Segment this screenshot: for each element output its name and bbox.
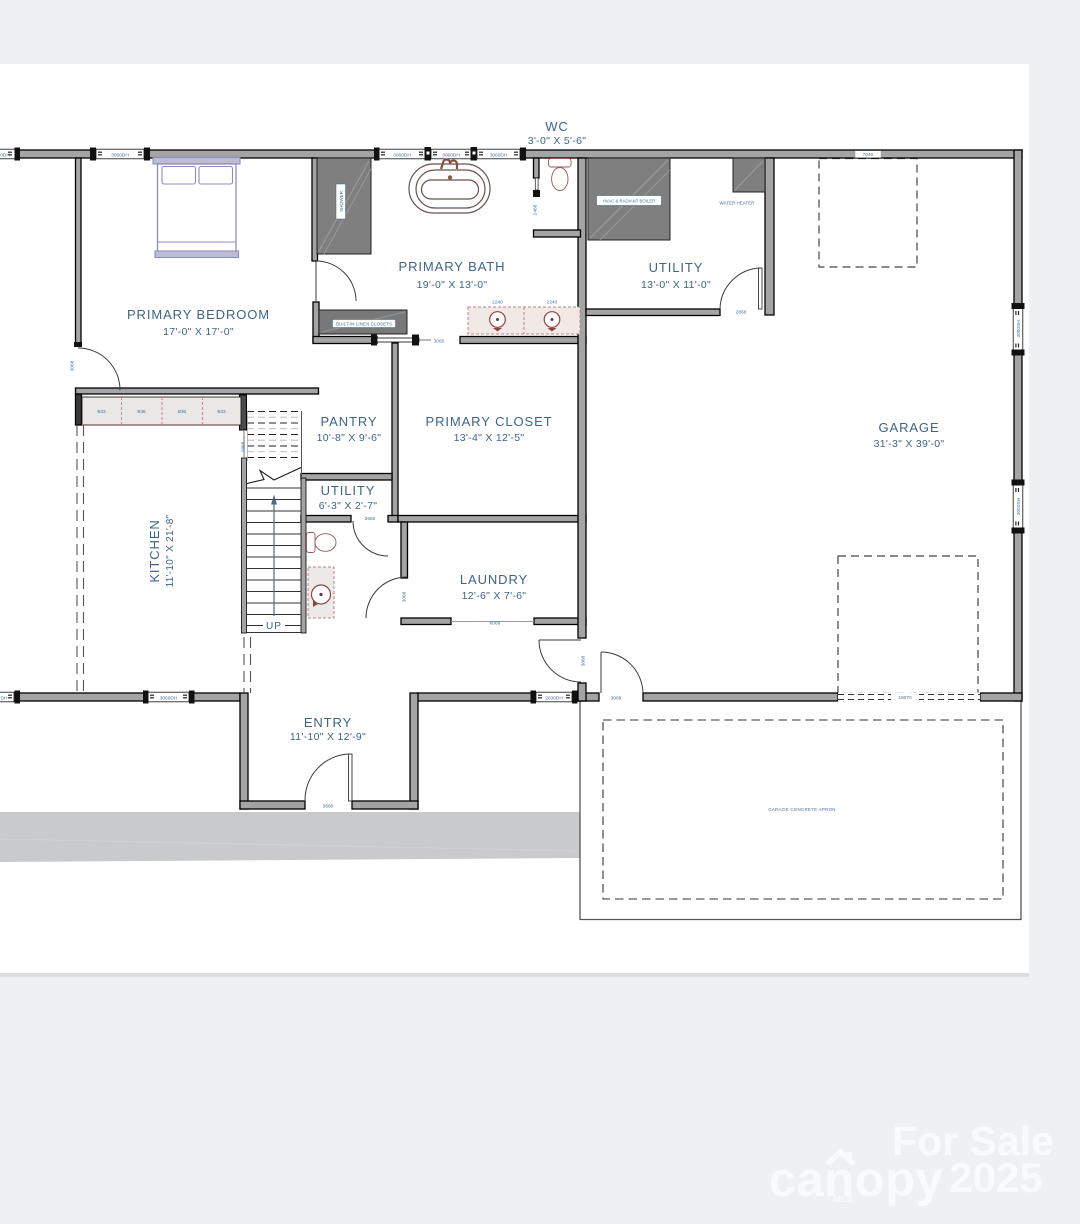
svg-text:KITCHEN: KITCHEN xyxy=(147,519,162,582)
svg-text:WC: WC xyxy=(545,119,568,134)
svg-text:PRIMARY BATH: PRIMARY BATH xyxy=(399,259,506,274)
svg-text:2240: 2240 xyxy=(492,300,503,306)
svg-text:6'-3" X 2'-7": 6'-3" X 2'-7" xyxy=(319,500,378,512)
svg-text:13'-4" X 12'-5": 13'-4" X 12'-5" xyxy=(454,432,525,444)
svg-text:DH: DH xyxy=(1,696,8,702)
svg-text:7040: 7040 xyxy=(863,152,874,158)
svg-text:MLS: MLS xyxy=(833,1194,853,1205)
svg-text:UTILITY: UTILITY xyxy=(649,260,704,275)
svg-text:3050SH: 3050SH xyxy=(1016,320,1022,338)
svg-text:6068: 6068 xyxy=(490,621,501,627)
svg-text:2660: 2660 xyxy=(365,516,376,522)
svg-text:11'-10" X 21'-8": 11'-10" X 21'-8" xyxy=(165,514,176,587)
svg-text:10'-8" X 9'-6": 10'-8" X 9'-6" xyxy=(317,432,382,444)
svg-text:UP: UP xyxy=(266,621,282,632)
svg-text:2868: 2868 xyxy=(736,310,747,316)
svg-text:B33: B33 xyxy=(217,409,226,414)
svg-text:B36: B36 xyxy=(178,409,187,414)
svg-text:17'-0" X 17'-0": 17'-0" X 17'-0" xyxy=(163,326,234,338)
svg-text:2030DH: 2030DH xyxy=(545,696,563,702)
svg-text:31'-3" X 39'-0": 31'-3" X 39'-0" xyxy=(874,438,945,450)
svg-text:3068: 3068 xyxy=(402,591,408,602)
svg-text:2240: 2240 xyxy=(547,300,558,306)
svg-text:3068: 3068 xyxy=(581,655,587,666)
svg-text:2468: 2468 xyxy=(533,204,539,215)
svg-text:B36: B36 xyxy=(137,409,146,414)
svg-text:13'-0" X 11'-0": 13'-0" X 11'-0" xyxy=(641,279,711,291)
svg-text:PRIMARY BEDROOM: PRIMARY BEDROOM xyxy=(127,307,270,322)
svg-text:HVAC & RADIANT BOILER: HVAC & RADIANT BOILER xyxy=(603,199,656,204)
svg-text:11'-10" X 12'-9": 11'-10" X 12'-9" xyxy=(290,731,366,743)
svg-text:16070: 16070 xyxy=(898,695,912,701)
svg-text:canopy: canopy xyxy=(769,1153,944,1207)
svg-text:SHOWER: SHOWER xyxy=(339,190,344,212)
svg-text:2025: 2025 xyxy=(949,1154,1042,1201)
svg-text:GARAGE: GARAGE xyxy=(878,420,939,435)
svg-text:19'-0" X 13'-0": 19'-0" X 13'-0" xyxy=(417,279,488,291)
svg-text:PANTRY: PANTRY xyxy=(321,414,378,429)
svg-text:0DH: 0DH xyxy=(0,153,10,159)
svg-text:PRIMARY CLOSET: PRIMARY CLOSET xyxy=(426,414,553,429)
svg-text:WATER HEATER: WATER HEATER xyxy=(720,201,756,206)
svg-text:UTILITY: UTILITY xyxy=(321,483,376,498)
svg-text:3068: 3068 xyxy=(611,696,622,702)
svg-text:LAUNDRY: LAUNDRY xyxy=(460,572,528,587)
svg-text:3060DH: 3060DH xyxy=(111,153,129,159)
svg-text:3060DH: 3060DH xyxy=(393,153,411,159)
svg-text:ENTRY: ENTRY xyxy=(304,715,352,730)
svg-text:3060DH: 3060DH xyxy=(160,696,178,702)
svg-text:GARAGE CONCRETE APRON: GARAGE CONCRETE APRON xyxy=(768,807,836,812)
svg-text:3060: 3060 xyxy=(434,339,445,345)
svg-text:3068: 3068 xyxy=(70,360,76,371)
svg-text:3'-0" X 5'-6": 3'-0" X 5'-6" xyxy=(528,135,587,147)
svg-text:3660: 3660 xyxy=(323,804,334,810)
svg-text:12'-6" X 7'-6": 12'-6" X 7'-6" xyxy=(462,590,527,602)
svg-text:3060DH: 3060DH xyxy=(442,153,460,159)
svg-text:BUILT-IN LINEN CLOSETS: BUILT-IN LINEN CLOSETS xyxy=(336,322,392,327)
svg-text:3050SH: 3050SH xyxy=(1016,497,1022,515)
svg-text:B33: B33 xyxy=(97,409,106,414)
svg-text:3060DH: 3060DH xyxy=(490,153,508,159)
svg-text:2868: 2868 xyxy=(241,441,247,452)
